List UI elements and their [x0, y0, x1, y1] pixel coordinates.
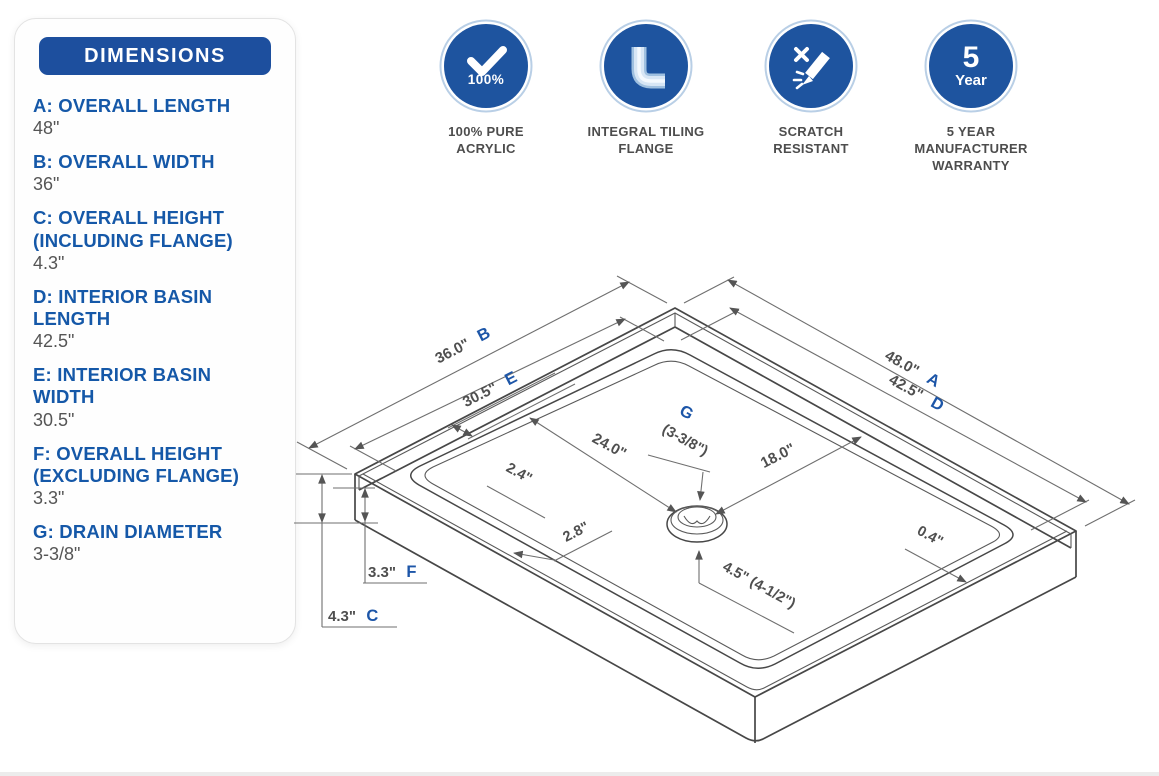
dim-value: 24.0" [589, 430, 629, 462]
dim-value: 2.8" [561, 519, 592, 546]
dim-value: 4.5" (4-1/2") [720, 559, 798, 612]
dim-drain-diameter: G (3-3/8") [648, 402, 711, 500]
dim-value: 3.3" [368, 564, 396, 581]
dim-drain-from-back: 18.0" [716, 437, 861, 514]
svg-text:36.0" B: 36.0" B [432, 324, 493, 368]
dim-value: 4.3" [328, 608, 356, 625]
dim-overall-length: 48.0" A [684, 277, 1135, 526]
technical-drawing: 36.0" B 30.5" E 48.0" A 42.5" D [0, 0, 1159, 776]
dim-value: (3-3/8") [659, 421, 710, 459]
dim-value: 0.4" [914, 523, 945, 550]
dim-letter: G [676, 402, 696, 424]
dim-rim-width: 0.4" [905, 523, 966, 582]
dim-interior-length: 42.5" D [681, 308, 1089, 530]
dim-drain-assembly: 4.5" (4-1/2") [699, 551, 798, 633]
dim-letter: B [474, 324, 493, 346]
dim-value: 18.0" [758, 440, 798, 472]
dim-value: 36.0" [433, 335, 473, 367]
dim-height-including-flange: 4.3" C [294, 474, 397, 627]
tray-outline [355, 308, 1076, 743]
svg-text:4.3" C: 4.3" C [328, 607, 378, 625]
dim-letter: C [366, 607, 378, 625]
dim-letter: A [924, 369, 943, 391]
dim-deck-front-strip: 2.8" [514, 519, 612, 561]
dim-drain-from-left: 24.0" [530, 418, 676, 512]
dim-letter: F [406, 563, 416, 581]
dim-value: 2.4" [503, 460, 534, 487]
dim-letter: D [928, 393, 947, 415]
page-bottom-edge [0, 772, 1159, 776]
svg-text:3.3" F: 3.3" F [368, 563, 417, 581]
